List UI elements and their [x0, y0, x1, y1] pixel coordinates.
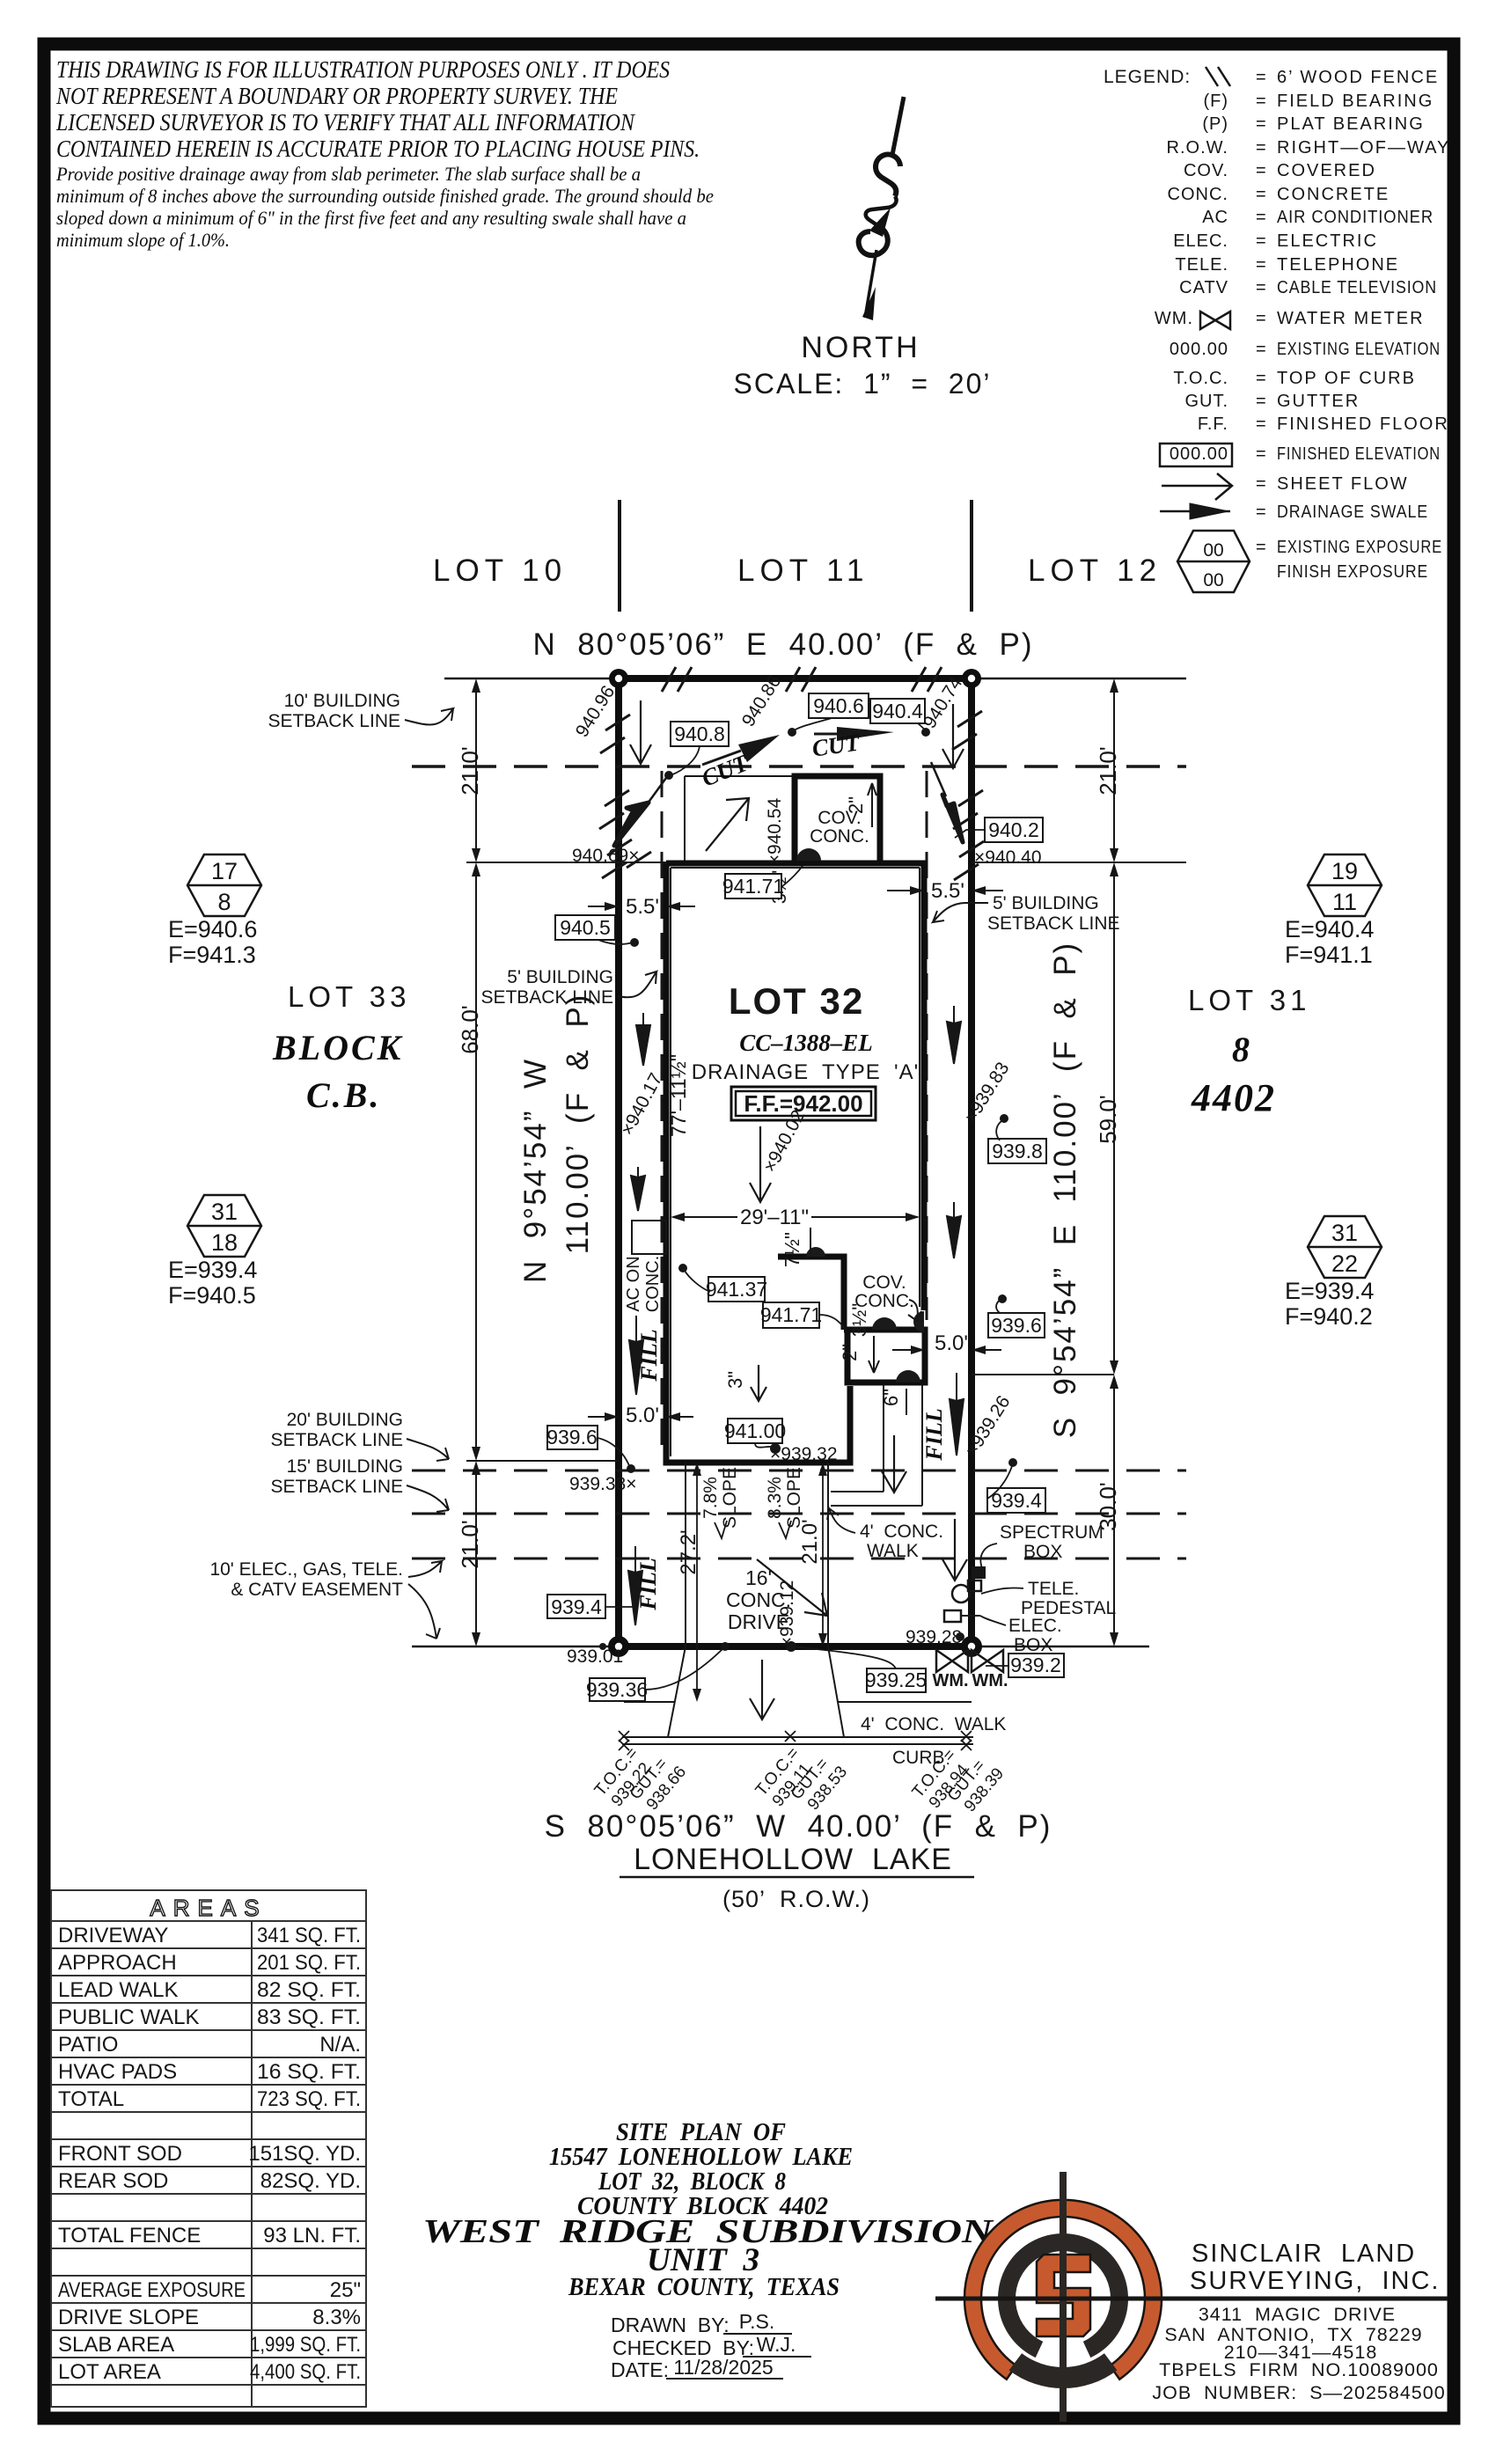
svg-text:CONC.: CONC.: [1168, 185, 1228, 204]
svg-text:=: =: [1256, 138, 1267, 158]
svg-text:TELE.: TELE.: [1028, 1579, 1079, 1599]
svg-text:LOT AREA: LOT AREA: [58, 2360, 161, 2384]
svg-text:GUT.: GUT.: [1184, 392, 1228, 411]
svg-text:29'–11": 29'–11": [740, 1206, 809, 1229]
svg-text:10' BUILDING: 10' BUILDING: [284, 691, 400, 711]
svg-text:SPECTRUM: SPECTRUM: [1000, 1522, 1104, 1543]
svg-text:3411 MAGIC DRIVE: 3411 MAGIC DRIVE: [1199, 2304, 1396, 2325]
svg-text:31: 31: [211, 1199, 238, 1225]
svg-text:FRONT SOD: FRONT SOD: [58, 2142, 182, 2166]
svg-text:WM.: WM.: [932, 1671, 968, 1690]
svg-text:SETBACK LINE: SETBACK LINE: [268, 711, 400, 731]
svg-text:8: 8: [217, 889, 231, 915]
svg-text:(P): (P): [1202, 114, 1228, 134]
svg-text:F=941.1: F=941.1: [1285, 942, 1373, 968]
svg-text:HVAC PADS: HVAC PADS: [58, 2060, 177, 2084]
svg-text:FINISHED FLOOR: FINISHED FLOOR: [1277, 414, 1449, 434]
svg-text:LOT 32: LOT 32: [729, 980, 864, 1022]
svg-text:4' CONC. WALK: 4' CONC. WALK: [861, 1714, 1006, 1734]
svg-text:WM.: WM.: [972, 1671, 1008, 1690]
svg-text:TOTAL: TOTAL: [58, 2087, 124, 2111]
svg-text:& CATV EASEMENT: & CATV EASEMENT: [231, 1580, 403, 1600]
svg-text:AC: AC: [1202, 208, 1228, 227]
svg-text:F=941.3: F=941.3: [168, 942, 256, 968]
svg-text:CONTAINED HEREIN IS ACCURATE P: CONTAINED HEREIN IS ACCURATE PRIOR TO PL…: [56, 136, 700, 162]
svg-text:W.J.: W.J.: [757, 2333, 796, 2356]
svg-text:FILL: FILL: [921, 1408, 947, 1461]
svg-text:NOT REPRESENT A BOUNDARY OR PR: NOT REPRESENT A BOUNDARY OR PROPERTY SUR…: [55, 83, 618, 109]
svg-text:941.71: 941.71: [722, 875, 784, 898]
svg-text:THIS DRAWING IS FOR ILLUSTRATI: THIS DRAWING IS FOR ILLUSTRATION PURPOSE…: [56, 56, 670, 83]
svg-text:8: 8: [1232, 1030, 1250, 1069]
svg-text:SETBACK LINE: SETBACK LINE: [270, 1430, 403, 1450]
svg-text:SETBACK LINE: SETBACK LINE: [987, 913, 1120, 934]
svg-text:=: =: [1256, 231, 1267, 251]
svg-text:SLOPE: SLOPE: [720, 1467, 740, 1529]
svg-text:(F): (F): [1203, 92, 1228, 111]
svg-text:SLOPE: SLOPE: [784, 1467, 804, 1529]
svg-text:LICENSED SURVEYOR IS TO VERIFY: LICENSED SURVEYOR IS TO VERIFY THAT ALL …: [55, 109, 636, 136]
svg-text:GUTTER: GUTTER: [1277, 392, 1360, 411]
svg-text:4' CONC.: 4' CONC.: [860, 1522, 943, 1542]
svg-text:82 SQ. FT.: 82 SQ. FT.: [257, 1978, 361, 2002]
svg-text:940.69×: 940.69×: [572, 846, 640, 866]
svg-text:000.00: 000.00: [1170, 444, 1228, 464]
svg-text:T.O.C.: T.O.C.: [1173, 369, 1228, 388]
svg-text:LEAD WALK: LEAD WALK: [58, 1978, 179, 2002]
svg-text:WM.: WM.: [1155, 309, 1193, 328]
svg-text:AREAS: AREAS: [150, 1895, 267, 1921]
svg-text:939.25: 939.25: [865, 1668, 927, 1691]
svg-text:CC–1388–EL: CC–1388–EL: [739, 1030, 873, 1056]
svg-text:PATIO: PATIO: [58, 2033, 118, 2057]
svg-text:939.4: 939.4: [551, 1595, 602, 1618]
svg-text:minimum of 8 inches above the: minimum of 8 inches above the surroundin…: [56, 185, 714, 207]
svg-text:APPROACH: APPROACH: [58, 1951, 177, 1975]
svg-text:939.6: 939.6: [546, 1426, 598, 1448]
svg-text:940.5: 940.5: [560, 916, 611, 939]
svg-text:21.0': 21.0': [457, 1520, 483, 1569]
svg-text:FIELD BEARING: FIELD BEARING: [1277, 92, 1434, 111]
svg-text:DRIVEWAY: DRIVEWAY: [58, 1924, 168, 1947]
svg-text:BLOCK: BLOCK: [272, 1028, 403, 1067]
svg-text:723 SQ. FT.: 723 SQ. FT.: [257, 2087, 361, 2111]
svg-text:FINISH EXPOSURE: FINISH EXPOSURE: [1277, 562, 1428, 582]
svg-text:EXISTING EXPOSURE: EXISTING EXPOSURE: [1277, 538, 1442, 557]
svg-text:939.36: 939.36: [586, 1678, 648, 1701]
svg-text:BOX: BOX: [1014, 1635, 1052, 1655]
svg-text:5.0': 5.0': [935, 1331, 968, 1355]
svg-text:=: =: [1256, 414, 1267, 434]
svg-text:939.01: 939.01: [567, 1646, 623, 1667]
svg-text:PUBLIC WALK: PUBLIC WALK: [58, 2006, 200, 2029]
svg-text:R.O.W.: R.O.W.: [1167, 138, 1228, 158]
svg-text:SETBACK LINE: SETBACK LINE: [480, 987, 613, 1008]
svg-text:DRIVE SLOPE: DRIVE SLOPE: [58, 2306, 199, 2329]
svg-text:940.2: 940.2: [988, 818, 1039, 841]
svg-text:ELECTRIC: ELECTRIC: [1277, 231, 1378, 251]
svg-text:5' BUILDING: 5' BUILDING: [993, 893, 1099, 913]
svg-text:=: =: [1256, 185, 1267, 204]
svg-text:19: 19: [1331, 858, 1358, 884]
svg-text:939.2: 939.2: [1010, 1654, 1061, 1676]
svg-text:83 SQ. FT.: 83 SQ. FT.: [257, 2006, 361, 2029]
svg-text:5.0': 5.0': [626, 1404, 659, 1427]
svg-text:110.00’ (F & P): 110.00’ (F & P): [561, 994, 595, 1255]
svg-text:20' BUILDING: 20' BUILDING: [287, 1410, 403, 1430]
svg-text:TOTAL FENCE: TOTAL FENCE: [58, 2224, 201, 2248]
svg-text:TELEPHONE: TELEPHONE: [1277, 255, 1399, 275]
svg-text:CONC.: CONC.: [643, 1256, 663, 1312]
svg-text:LOT 31: LOT 31: [1188, 984, 1310, 1016]
svg-text:DRAINAGE SWALE: DRAINAGE SWALE: [1277, 502, 1428, 522]
svg-text:WATER METER: WATER METER: [1277, 309, 1425, 328]
svg-text:LOT 33: LOT 33: [288, 980, 410, 1013]
svg-text:=: =: [1256, 255, 1267, 275]
svg-text:LOT 10: LOT 10: [433, 554, 567, 588]
svg-text:18: 18: [211, 1229, 238, 1256]
svg-text:E=939.4: E=939.4: [1285, 1278, 1374, 1304]
svg-text:TELE.: TELE.: [1175, 255, 1228, 275]
svg-text:S 80°05’06” W 40.00’ (F &: S 80°05’06” W 40.00’ (F & P): [545, 1809, 1052, 1844]
svg-text:LEGEND:: LEGEND:: [1104, 67, 1191, 87]
svg-text:151SQ. YD.: 151SQ. YD.: [248, 2142, 361, 2166]
svg-text:N/A.: N/A.: [319, 2033, 361, 2057]
svg-text:4,400 SQ. FT.: 4,400 SQ. FT.: [250, 2360, 361, 2384]
svg-text:=: =: [1256, 474, 1267, 494]
svg-text:REAR SOD: REAR SOD: [58, 2169, 168, 2193]
svg-text:COV.: COV.: [1184, 161, 1228, 180]
svg-text:ELEC.: ELEC.: [1008, 1616, 1062, 1636]
svg-text:11: 11: [1332, 889, 1357, 915]
svg-text:EXISTING ELEVATION: EXISTING ELEVATION: [1277, 340, 1441, 359]
svg-text:NORTH: NORTH: [801, 331, 920, 364]
svg-text:TOP OF CURB: TOP OF CURB: [1277, 369, 1416, 388]
svg-text:341 SQ. FT.: 341 SQ. FT.: [257, 1924, 361, 1947]
svg-text:AIR CONDITIONER: AIR CONDITIONER: [1277, 208, 1434, 227]
svg-text:21.0': 21.0': [457, 746, 483, 796]
svg-text:77'–11½": 77'–11½": [667, 1054, 690, 1137]
svg-text:15' BUILDING: 15' BUILDING: [287, 1456, 403, 1477]
svg-text:N 9°54’54” W: N 9°54’54” W: [518, 1058, 553, 1283]
svg-text:×940.54: ×940.54: [765, 797, 785, 865]
svg-text:5.5': 5.5': [931, 879, 964, 903]
svg-text:=: =: [1256, 444, 1267, 464]
svg-text:=: =: [1256, 92, 1267, 111]
svg-text:=: =: [1256, 369, 1267, 388]
svg-text:00: 00: [1203, 540, 1223, 561]
svg-text:1,999 SQ. FT.: 1,999 SQ. FT.: [250, 2333, 361, 2357]
svg-text:82SQ. YD.: 82SQ. YD.: [260, 2169, 361, 2193]
svg-text:59.0': 59.0': [1095, 1095, 1121, 1144]
svg-text:939.6: 939.6: [991, 1314, 1042, 1337]
svg-text:15547 LONEHOLLOW LAKE: 15547 LONEHOLLOW LAKE: [549, 2144, 853, 2171]
svg-text:11/28/2025: 11/28/2025: [673, 2356, 773, 2379]
svg-text:SHEET FLOW: SHEET FLOW: [1277, 474, 1409, 494]
svg-text:000.00: 000.00: [1170, 340, 1228, 359]
svg-text:10' ELEC., GAS, TELE.: 10' ELEC., GAS, TELE.: [209, 1559, 403, 1580]
svg-text:COV.: COV.: [818, 808, 861, 828]
svg-text:3": 3": [724, 1371, 746, 1389]
svg-text:68.0': 68.0': [457, 1005, 483, 1054]
svg-text:SCALE: 1” = 20’: SCALE: 1” = 20’: [733, 368, 991, 400]
svg-text:16 SQ. FT.: 16 SQ. FT.: [257, 2060, 361, 2084]
svg-text:FILL: FILL: [636, 1329, 662, 1382]
svg-text:941.71: 941.71: [760, 1303, 822, 1326]
svg-text:minimum slope of 1.0%.: minimum slope of 1.0%.: [56, 229, 230, 251]
svg-text:8.3%: 8.3%: [312, 2306, 361, 2329]
svg-text:7½": 7½": [781, 1232, 803, 1267]
svg-text:CABLE TELEVISION: CABLE TELEVISION: [1277, 278, 1437, 297]
svg-text:21.0': 21.0': [1095, 746, 1121, 796]
svg-text:SITE PLAN OF: SITE PLAN OF: [616, 2119, 786, 2146]
svg-text:F.F.: F.F.: [1198, 414, 1228, 434]
svg-text:=: =: [1256, 161, 1267, 180]
svg-text:=: =: [1256, 392, 1267, 411]
svg-text:E=939.4: E=939.4: [168, 1257, 257, 1283]
svg-text:FINISHED ELEVATION: FINISHED ELEVATION: [1277, 444, 1441, 464]
svg-text:25": 25": [330, 2278, 361, 2302]
svg-text:LOT 32, BLOCK 8: LOT 32, BLOCK 8: [598, 2168, 786, 2196]
svg-text:E=940.4: E=940.4: [1285, 916, 1374, 942]
svg-text:22: 22: [1331, 1250, 1358, 1277]
svg-text:939.28: 939.28: [906, 1627, 962, 1647]
svg-text:2": 2": [839, 1344, 861, 1361]
svg-text:CONC.: CONC.: [810, 826, 869, 847]
svg-text:5' BUILDING: 5' BUILDING: [507, 967, 613, 987]
svg-text:PLAT BEARING: PLAT BEARING: [1277, 114, 1425, 134]
svg-text:CONCRETE: CONCRETE: [1277, 185, 1390, 204]
svg-text:SINCLAIR LAND: SINCLAIR LAND: [1192, 2240, 1416, 2268]
svg-text:F=940.2: F=940.2: [1285, 1303, 1373, 1330]
svg-text:WALK: WALK: [867, 1541, 919, 1561]
svg-text:940.4: 940.4: [872, 700, 923, 722]
svg-text:16': 16': [745, 1566, 772, 1589]
svg-text:LONEHOLLOW LAKE: LONEHOLLOW LAKE: [634, 1843, 952, 1876]
svg-text:N 80°05’06” E 40.00’ (F &: N 80°05’06” E 40.00’ (F & P): [533, 627, 1034, 662]
svg-text:=: =: [1256, 278, 1267, 297]
svg-text:DATE:: DATE:: [611, 2358, 669, 2381]
svg-text:8.3%: 8.3%: [765, 1477, 785, 1519]
svg-text:Provide positive drainage away: Provide positive drainage away from slab…: [55, 163, 641, 185]
svg-text:31: 31: [1331, 1220, 1358, 1246]
svg-text:F=940.5: F=940.5: [168, 1282, 256, 1309]
svg-text:941.37: 941.37: [706, 1278, 767, 1301]
svg-text:941.00: 941.00: [724, 1419, 786, 1442]
svg-text:CATV: CATV: [1179, 278, 1228, 297]
svg-text:SETBACK LINE: SETBACK LINE: [270, 1477, 403, 1497]
svg-text:DRAWN BY:: DRAWN BY:: [611, 2314, 730, 2336]
svg-text:=: =: [1256, 68, 1267, 87]
svg-text:93 LN. FT.: 93 LN. FT.: [263, 2224, 361, 2248]
svg-text:4402: 4402: [1191, 1076, 1276, 1119]
svg-text:JOB NUMBER: S—202584500: JOB NUMBER: S—202584500: [1152, 2382, 1445, 2403]
svg-text:AVERAGE EXPOSURE: AVERAGE EXPOSURE: [58, 2278, 246, 2302]
svg-text:=: =: [1256, 309, 1267, 328]
svg-text:RIGHT—OF—WAY: RIGHT—OF—WAY: [1277, 138, 1450, 158]
svg-text:UNIT 3: UNIT 3: [647, 2242, 759, 2278]
svg-text:939.38×: 939.38×: [569, 1474, 637, 1494]
svg-text:F.F.=942.00: F.F.=942.00: [744, 1090, 862, 1117]
svg-text:sloped down a minimum of 6" in: sloped down a minimum of 6" in the first…: [56, 207, 686, 229]
svg-text:940.6: 940.6: [813, 694, 864, 717]
svg-text:=: =: [1256, 538, 1267, 557]
svg-text:DRAINAGE TYPE 'A': DRAINAGE TYPE 'A': [692, 1060, 919, 1084]
svg-text:27.2': 27.2': [677, 1529, 700, 1574]
svg-text:BOX: BOX: [1023, 1542, 1062, 1562]
svg-text:6’ WOOD FENCE: 6’ WOOD FENCE: [1277, 68, 1439, 87]
svg-text:TBPELS FIRM NO.10089000: TBPELS FIRM NO.10089000: [1159, 2359, 1439, 2380]
svg-text:AC ON: AC ON: [624, 1256, 643, 1311]
svg-text:SLAB AREA: SLAB AREA: [58, 2333, 174, 2357]
svg-text:201 SQ. FT.: 201 SQ. FT.: [257, 1951, 361, 1975]
svg-text:939.4: 939.4: [991, 1489, 1042, 1512]
svg-text:LOT 12: LOT 12: [1028, 554, 1162, 588]
svg-text:×940.40: ×940.40: [974, 847, 1042, 868]
svg-text:7.8%: 7.8%: [700, 1477, 721, 1519]
svg-text:939.8: 939.8: [992, 1140, 1043, 1162]
svg-text:ELEC.: ELEC.: [1173, 231, 1228, 251]
svg-text:5.5': 5.5': [626, 895, 659, 919]
svg-text:3½": 3½": [848, 1303, 870, 1337]
svg-text:E=940.6: E=940.6: [168, 916, 257, 942]
svg-text:940.8: 940.8: [674, 722, 725, 745]
svg-text:COV.: COV.: [862, 1272, 906, 1293]
svg-text:COVERED: COVERED: [1277, 161, 1376, 180]
svg-text:(50’ R.O.W.): (50’ R.O.W.): [722, 1886, 870, 1912]
svg-text:=: =: [1256, 208, 1267, 227]
svg-text:S 9°54’54” E 110.00’ (F &: S 9°54’54” E 110.00’ (F & P): [1048, 942, 1082, 1438]
svg-text:17: 17: [211, 858, 238, 884]
svg-text:=: =: [1256, 114, 1267, 134]
svg-text:00: 00: [1203, 570, 1223, 590]
svg-text:FILL: FILL: [635, 1558, 661, 1610]
svg-text:=: =: [1256, 340, 1267, 359]
svg-text:BEXAR COUNTY, TEXAS: BEXAR COUNTY, TEXAS: [568, 2274, 840, 2301]
svg-text:P.S.: P.S.: [739, 2310, 775, 2333]
svg-text:=: =: [1256, 502, 1267, 522]
svg-text:SURVEYING, INC.: SURVEYING, INC.: [1190, 2267, 1440, 2295]
svg-text:C.B.: C.B.: [306, 1075, 381, 1115]
svg-text:LOT 11: LOT 11: [737, 554, 869, 588]
